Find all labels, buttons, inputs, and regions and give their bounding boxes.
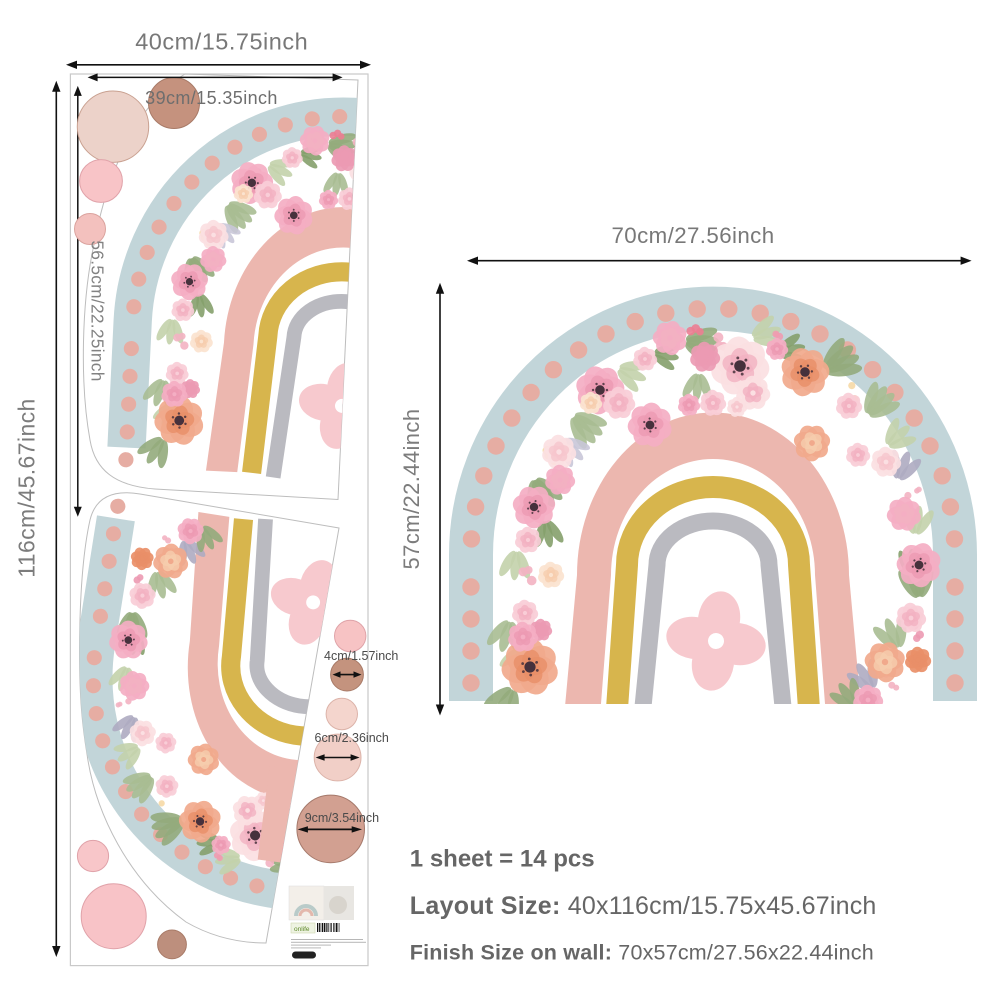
svg-text:4cm/1.57inch: 4cm/1.57inch	[324, 649, 398, 663]
svg-text:40cm/15.75inch: 40cm/15.75inch	[135, 29, 308, 55]
svg-text:Layout Size: 40x116cm/15.75x45: Layout Size: 40x116cm/15.75x45.67inch	[410, 892, 877, 920]
svg-text:6cm/2.36inch: 6cm/2.36inch	[315, 731, 389, 745]
svg-text:1 sheet = 14 pcs: 1 sheet = 14 pcs	[410, 846, 595, 873]
svg-text:9cm/3.54inch: 9cm/3.54inch	[305, 811, 379, 825]
svg-text:116cm/45.67inch: 116cm/45.67inch	[14, 398, 40, 577]
svg-text:57cm/22.44inch: 57cm/22.44inch	[399, 409, 424, 570]
svg-text:70cm/27.56inch: 70cm/27.56inch	[611, 223, 774, 248]
svg-text:39cm/15.35inch: 39cm/15.35inch	[145, 88, 278, 108]
svg-text:56.5cm/22.25inch: 56.5cm/22.25inch	[88, 240, 108, 381]
svg-text:Finish Size on wall: 70x57cm/2: Finish Size on wall: 70x57cm/27.56x22.44…	[410, 941, 874, 965]
svg-text:onlife: onlife	[294, 926, 310, 933]
